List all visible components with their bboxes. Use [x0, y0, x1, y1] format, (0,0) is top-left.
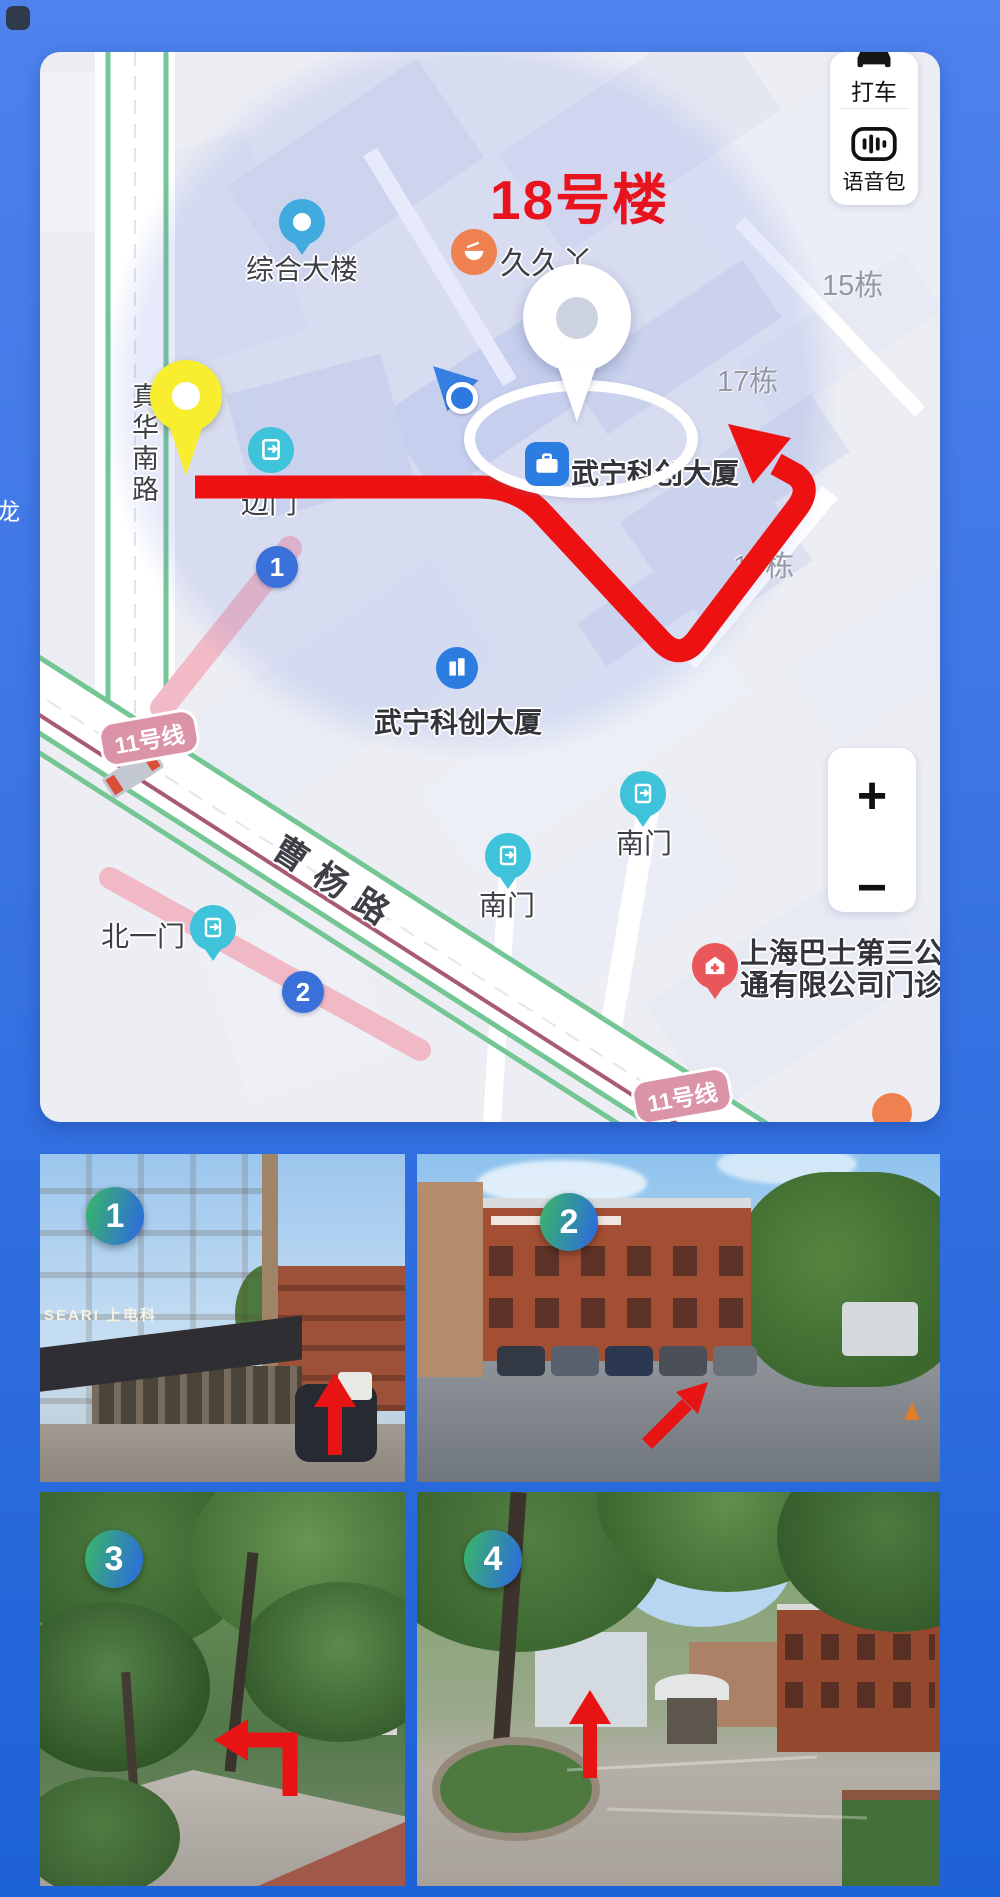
route-photo-4: 4 — [417, 1492, 940, 1886]
gate-poi-icon-bianmen — [248, 427, 294, 473]
corner-planter — [842, 1790, 940, 1886]
traffic-cone — [904, 1394, 920, 1420]
food-poi-icon — [451, 229, 497, 275]
building-poi-icon — [436, 647, 478, 689]
destination-pin-tail — [557, 364, 597, 442]
photo-3-bent-arrow — [190, 1692, 310, 1802]
clipped-label: 龙 — [0, 492, 20, 527]
origin-pin-tail — [170, 428, 202, 492]
map-title: 18号楼 — [490, 155, 669, 235]
car — [497, 1346, 545, 1376]
hospital-pin — [692, 943, 738, 989]
photo-4-badge: 4 — [464, 1530, 522, 1588]
bldg-label-15: 15栋 — [822, 262, 883, 304]
photo-4-up-arrow — [560, 1684, 620, 1784]
poi-pin-icon — [279, 199, 325, 245]
gate-pin-nanmen-2 — [620, 771, 666, 817]
car — [551, 1346, 599, 1376]
map-canvas[interactable]: 18号楼 综合大楼 久久丫 15栋 17栋 19栋 武宁科创大厦 真华南路 边门… — [40, 52, 940, 1122]
compass-dot — [446, 382, 478, 414]
poi-label-wuning-2: 武宁科创大厦 — [374, 701, 542, 741]
gate-pin-beiyimen — [190, 905, 236, 951]
photo-2-diagonal-arrow — [632, 1364, 727, 1459]
bldg-label-17: 17栋 — [717, 358, 778, 400]
poi-label-bianmen: 边门 — [241, 482, 297, 522]
side-building — [417, 1182, 483, 1377]
photo-1-up-arrow — [305, 1369, 365, 1461]
origin-pin — [150, 360, 222, 432]
gazebo — [667, 1698, 717, 1744]
building-sign: SEARI 上电科 — [44, 1304, 157, 1325]
clipped-icon — [6, 6, 30, 30]
poi-label-beiyimen: 北一门 — [101, 915, 185, 955]
zoom-out-button[interactable]: − — [828, 862, 916, 914]
map-tools-card: 打车 语音包 — [830, 52, 918, 205]
briefcase-poi-icon — [525, 442, 569, 486]
brick-building — [483, 1206, 751, 1361]
route-photo-3: 3 — [40, 1492, 405, 1886]
destination-pin — [523, 264, 631, 372]
zoom-in-button[interactable]: + — [828, 770, 916, 822]
truck — [842, 1302, 918, 1356]
bldg-label-19: 19栋 — [733, 543, 794, 585]
route-marker-1: 1 — [256, 546, 298, 588]
gazebo-roof — [655, 1674, 729, 1700]
photo-1-badge: 1 — [86, 1187, 144, 1245]
photo-2-badge: 2 — [540, 1193, 598, 1251]
taxi-button[interactable]: 打车 — [830, 73, 918, 107]
route-photo-1: SEARI 上电科 1 — [40, 1154, 405, 1482]
voice-pack-icon[interactable] — [830, 127, 918, 166]
photo-3-badge: 3 — [85, 1530, 143, 1588]
gate-pin-nanmen-1 — [485, 833, 531, 879]
voice-pack-button[interactable]: 语音包 — [830, 166, 918, 196]
poi-label-hospital: 上海巴士第三公 通有限公司门诊 — [740, 938, 940, 1002]
route-photo-2: 2 — [417, 1154, 940, 1482]
route-marker-2: 2 — [282, 971, 324, 1013]
zoom-panel: + − — [828, 748, 916, 912]
